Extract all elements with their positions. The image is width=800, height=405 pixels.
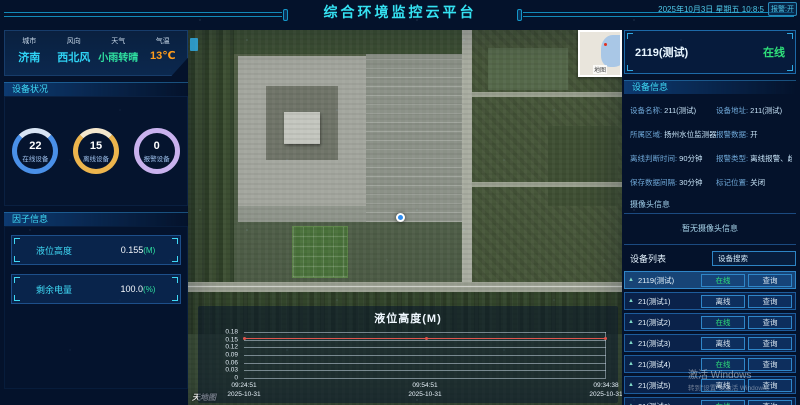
chart-gridline bbox=[244, 363, 606, 364]
section-header-device-info: 设备信息 bbox=[624, 80, 796, 94]
device-row[interactable]: ▲ 21(测试1) 离线 查询 bbox=[624, 292, 796, 310]
query-button[interactable]: 查询 bbox=[748, 295, 792, 308]
factor-card-battery: 剩余电量 100.0(%) bbox=[11, 274, 181, 304]
device-location-marker[interactable] bbox=[396, 213, 405, 222]
y-tick: 0.03 bbox=[225, 367, 238, 374]
data-point bbox=[425, 337, 428, 340]
query-button[interactable]: 查询 bbox=[748, 358, 792, 371]
signal-icon: ▲ bbox=[628, 361, 634, 367]
dashboard: 综合环境监控云平台 2025年10月3日 星期五 10:8:5 报警:开 城市 … bbox=[0, 0, 800, 405]
selected-device-status: 在线 bbox=[763, 44, 785, 60]
weather-temperature: 气温 13℃ bbox=[141, 36, 186, 72]
weather-card: 城市 济南 风向 西北风 天气 小雨转晴 气温 13℃ bbox=[4, 30, 188, 76]
y-tick: 0 bbox=[234, 375, 238, 382]
y-tick: 0.12 bbox=[225, 344, 238, 351]
chart-gridline bbox=[244, 347, 606, 348]
device-status-label: 在线 bbox=[701, 274, 745, 287]
minimap-sea bbox=[601, 35, 622, 67]
page-title: 综合环境监控云平台 bbox=[324, 2, 477, 22]
chart-plot-area: 0.18 0.15 0.12 0.09 0.06 0.03 0 bbox=[244, 332, 606, 378]
signal-icon: ▲ bbox=[628, 319, 634, 325]
chart-gridline bbox=[244, 370, 606, 371]
info-row: 离线判断时间: 90分钟 报警类型: 离线报警、超限报警 bbox=[630, 148, 792, 166]
device-status-label: 离线 bbox=[701, 337, 745, 350]
chart-gridline bbox=[244, 332, 606, 333]
x-tick: 09:54:51 2025-10-31 bbox=[408, 382, 441, 400]
datetime-display: 2025年10月3日 星期五 10:8:5 bbox=[658, 4, 764, 15]
right-sidebar: 2119(测试) 在线 设备信息 设备名称: 211(测试) 设备地址: 211… bbox=[624, 30, 796, 405]
chart-gridline bbox=[244, 378, 606, 379]
chart-title: 液位高度(M) bbox=[198, 310, 618, 326]
signal-icon: ▲ bbox=[628, 277, 634, 283]
minimap-location-dot bbox=[604, 43, 607, 46]
selected-device-card: 2119(测试) 在线 bbox=[624, 30, 796, 74]
level-series-line bbox=[244, 338, 606, 339]
weather-wind: 风向 西北风 bbox=[52, 36, 97, 72]
camera-info-title: 摄像头信息 bbox=[624, 196, 796, 214]
device-row[interactable]: ▲ 21(测试2) 在线 查询 bbox=[624, 313, 796, 331]
device-list: ▲ 2119(测试) 在线 查询 ▲ 21(测试1) 离线 查询 ▲ 21(测试… bbox=[624, 271, 796, 405]
weather-city: 城市 济南 bbox=[7, 36, 52, 72]
query-button[interactable]: 查询 bbox=[748, 316, 792, 329]
selected-device-name: 2119(测试) bbox=[635, 44, 688, 60]
device-list-bar: 设备列表 bbox=[624, 249, 796, 267]
y-tick: 0.09 bbox=[225, 352, 238, 359]
device-status-label: 在线 bbox=[701, 316, 745, 329]
device-row[interactable]: ▲ 21(测试6) 在线 查询 bbox=[624, 397, 796, 405]
satellite-map[interactable]: 地图 天地图 液位高度(M) 0.18 0.15 0.12 0.09 0.06 … bbox=[188, 30, 622, 405]
y-tick: 0.06 bbox=[225, 359, 238, 366]
query-button[interactable]: 查询 bbox=[748, 337, 792, 350]
tab-device-list[interactable]: 设备列表 bbox=[624, 252, 666, 265]
data-point bbox=[604, 337, 607, 340]
left-sidebar: 城市 济南 风向 西北风 天气 小雨转晴 气温 13℃ 设备状况 22 在线设备 bbox=[4, 30, 188, 389]
device-row[interactable]: ▲ 21(测试4) 在线 查询 bbox=[624, 355, 796, 373]
header-decor-cap-right bbox=[517, 9, 522, 21]
device-status-rings: 22 在线设备 15 离线设备 0 报警设备 bbox=[4, 96, 188, 206]
minimap[interactable]: 地图 bbox=[578, 30, 622, 77]
device-row[interactable]: ▲ 2119(测试) 在线 查询 bbox=[624, 271, 796, 289]
device-status-label: 离线 bbox=[701, 379, 745, 392]
camera-empty-message: 暂无摄像头信息 bbox=[624, 214, 796, 245]
header-decor-line-left bbox=[4, 12, 282, 17]
level-chart-panel: 液位高度(M) 0.18 0.15 0.12 0.09 0.06 0.03 0 bbox=[198, 306, 618, 403]
map-zoom-control[interactable] bbox=[190, 38, 198, 51]
factor-list: 液位高度 0.155(M) 剩余电量 100.0(%) bbox=[4, 226, 188, 389]
section-header-factors: 因子信息 bbox=[4, 212, 188, 226]
device-search-input[interactable] bbox=[712, 251, 796, 266]
data-point bbox=[243, 337, 246, 340]
signal-icon: ▲ bbox=[628, 382, 634, 388]
offline-devices-ring: 15 离线设备 bbox=[73, 128, 119, 174]
y-tick: 0.18 bbox=[225, 329, 238, 336]
info-row: 所属区域: 扬州水位监测器 报警数据: 开 bbox=[630, 124, 792, 142]
chart-gridline bbox=[244, 355, 606, 356]
alarm-toggle-badge[interactable]: 报警:开 bbox=[768, 2, 797, 16]
chart-x-axis: 09:24:51 2025-10-31 09:54:51 2025-10-31 … bbox=[244, 382, 606, 398]
section-header-device-status: 设备状况 bbox=[4, 82, 188, 96]
online-devices-ring: 22 在线设备 bbox=[12, 128, 58, 174]
y-tick: 0.15 bbox=[225, 336, 238, 343]
query-button[interactable]: 查询 bbox=[748, 274, 792, 287]
device-status-label: 在线 bbox=[701, 358, 745, 371]
signal-icon: ▲ bbox=[628, 298, 634, 304]
minimap-label: 地图 bbox=[593, 65, 607, 74]
weather-condition: 天气 小雨转晴 bbox=[96, 36, 141, 72]
device-row[interactable]: ▲ 21(测试5) 离线 查询 bbox=[624, 376, 796, 394]
device-status-label: 在线 bbox=[701, 400, 745, 405]
device-info-grid: 设备名称: 211(测试) 设备地址: 211(测试) 所属区域: 扬州水位监测… bbox=[624, 94, 796, 190]
query-button[interactable]: 查询 bbox=[748, 400, 792, 405]
signal-icon: ▲ bbox=[628, 340, 634, 346]
device-status-label: 离线 bbox=[701, 295, 745, 308]
query-button[interactable]: 查询 bbox=[748, 379, 792, 392]
x-tick: 09:34:38 2025-10-31 bbox=[589, 382, 622, 400]
device-row[interactable]: ▲ 21(测试3) 离线 查询 bbox=[624, 334, 796, 352]
info-row: 保存数据间隔: 30分钟 标记位置: 关闭 bbox=[630, 172, 792, 190]
x-tick: 09:24:51 2025-10-31 bbox=[227, 382, 260, 400]
alarm-devices-ring: 0 报警设备 bbox=[134, 128, 180, 174]
header-decor-cap-left bbox=[283, 9, 288, 21]
info-row: 设备名称: 211(测试) 设备地址: 211(测试) bbox=[630, 100, 792, 118]
factor-card-level: 液位高度 0.155(M) bbox=[11, 235, 181, 265]
